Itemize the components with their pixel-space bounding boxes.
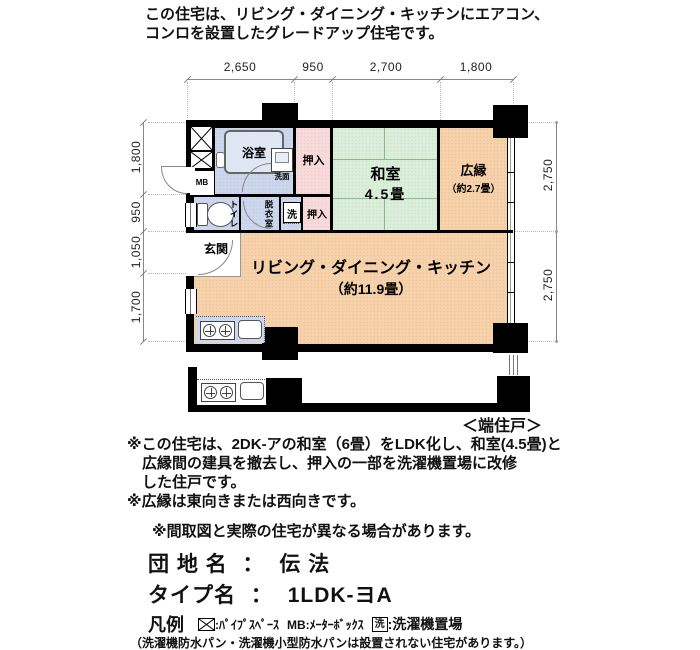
ldk-size-label: （約11.9畳） xyxy=(240,279,502,299)
extension-line xyxy=(513,82,514,103)
entry-door-arc xyxy=(161,167,187,194)
wall-left xyxy=(186,227,194,233)
legend-pipe-text: :ﾊﾟｲﾌﾟｽﾍﾟｰｽ xyxy=(215,616,279,633)
neighbor-stove-unit xyxy=(201,383,236,402)
dim-left-4: 1,700 xyxy=(129,283,143,331)
note-line5: ※間取図と実際の住宅が異なる場合があります。 xyxy=(152,520,480,541)
dim-tick xyxy=(140,338,147,345)
toilet-label: トイレ xyxy=(228,199,240,229)
laundry-label: 洗 xyxy=(284,206,300,221)
burner-icon xyxy=(203,324,216,337)
dim-top-3: 2,700 xyxy=(346,60,426,74)
legend-laundry-text: :洗濯機置場 xyxy=(388,614,463,634)
pipe-space-legend-icon xyxy=(198,618,215,631)
dim-top-1: 2,650 xyxy=(200,60,280,74)
dim-right-2: 2,750 xyxy=(541,261,555,309)
wall-left xyxy=(186,276,194,289)
window-tick xyxy=(507,262,514,263)
hiroen-size-label: （約2.7畳） xyxy=(438,180,509,195)
laundry-legend-icon: 洗 xyxy=(372,617,388,632)
burner-icon xyxy=(220,386,233,399)
wall-dressing-laundry xyxy=(279,197,281,230)
window-tick xyxy=(507,172,514,173)
extension-line xyxy=(440,82,441,122)
extension-line xyxy=(514,231,556,232)
wall-top xyxy=(186,120,513,128)
dim-left-1: 1,800 xyxy=(129,133,143,181)
washitsu-size-label: 4.5畳 xyxy=(333,184,438,204)
vent-mark xyxy=(513,355,514,375)
laundry-pan-mark xyxy=(283,223,299,224)
vent-mark xyxy=(509,355,510,375)
entry-door-leaf xyxy=(161,166,186,167)
vent-mark xyxy=(517,355,518,375)
estate-type-separator: ： xyxy=(251,584,273,607)
closet-lower-label: 押入 xyxy=(303,206,331,221)
neighbor-pillar-left xyxy=(266,378,302,404)
note-line3: した住戸です。 xyxy=(142,471,246,492)
header-note-line2: コンロを設置したグレードアップ住宅です。 xyxy=(145,24,549,43)
wall-bottom xyxy=(186,344,513,352)
estate-name-separator: ： xyxy=(243,553,265,576)
pillar-bottom-left xyxy=(262,327,298,360)
extension-line xyxy=(187,82,188,118)
ldk-name-label: リビング・ダイニング・キッチン xyxy=(240,254,502,278)
estate-type-value: 1LDK-ヨA xyxy=(288,584,393,607)
header-note: この住宅は、リビング・ダイニング・キッチンにエアコン、 コンロを設置したグレード… xyxy=(145,5,549,43)
estate-name-value: 伝 法 xyxy=(279,553,330,576)
burner-icon xyxy=(219,324,232,337)
estate-type-label: タイプ名 xyxy=(148,584,236,607)
estate-name-label: 団 地 名 xyxy=(148,553,228,576)
dim-top-4: 1,800 xyxy=(436,60,516,74)
extension-line xyxy=(148,273,186,274)
hiroen-name-label: 広縁 xyxy=(440,160,507,179)
dim-left-3: 1,050 xyxy=(129,228,143,276)
top-dimension-line xyxy=(187,79,513,80)
extension-line xyxy=(332,82,333,122)
neighbor-kitchen-sink xyxy=(240,382,264,400)
extension-line xyxy=(529,341,556,342)
note-line4: ※広縁は東向きまたは西向きです。 xyxy=(127,490,365,511)
window-tick xyxy=(507,202,514,203)
burner-icon xyxy=(204,386,217,399)
dim-right-1: 2,750 xyxy=(541,151,555,199)
shower-fixture xyxy=(216,152,225,168)
extension-line xyxy=(148,194,186,195)
legend-mb-text: MB:ﾒｰﾀｰﾎﾞｯｸｽ xyxy=(287,616,364,633)
window-tick xyxy=(507,292,514,293)
tatami-line xyxy=(333,159,438,160)
ldk-window xyxy=(185,289,197,314)
header-note-line1: この住宅は、リビング・ダイニング・キッチンにエアコン、 xyxy=(145,5,549,24)
tatami-line xyxy=(384,128,385,159)
closet-upper-label: 押入 xyxy=(296,152,331,168)
wall-left xyxy=(186,314,194,352)
pillar-top-right xyxy=(493,105,528,138)
pillar-top-left xyxy=(262,103,298,128)
floorplan-page: この住宅は、リビング・ダイニング・キッチンにエアコン、 コンロを設置したグレード… xyxy=(0,0,700,650)
washbasin-unit xyxy=(271,148,293,172)
note-line2: 広縁間の建具を撤去し、押入の一部を洗濯機置場に改修 xyxy=(142,452,517,473)
kitchen-sink xyxy=(238,320,262,339)
legend-disclaimer: （洗濯機防水パン・洗濯機小型防水パンは設置されない住宅があります。） xyxy=(130,634,532,650)
estate-type-row: タイプ名 ： 1LDK-ヨA xyxy=(148,579,393,609)
extension-line xyxy=(529,122,556,123)
estate-name-row: 団 地 名 ： 伝 法 xyxy=(148,548,330,578)
extension-line xyxy=(148,122,186,123)
laundry-pan: 洗 xyxy=(283,202,301,223)
extension-line xyxy=(148,231,186,232)
dim-top-2: 950 xyxy=(283,60,343,74)
neighbor-pillar-right xyxy=(497,376,530,404)
stove-unit xyxy=(200,321,235,340)
pipe-space-icon xyxy=(190,126,213,151)
extension-line xyxy=(148,341,186,342)
pillar-bottom-right xyxy=(493,323,528,353)
wall-ldk-top xyxy=(194,230,513,233)
note-line1: ※この住宅は、2DK-アの和室（6畳）をLDK化し、和室(4.5畳)と xyxy=(127,433,562,454)
toilet-window xyxy=(185,203,197,227)
dressing-label: 脱衣室 xyxy=(263,198,275,230)
washitsu-name-label: 和室 xyxy=(333,163,438,184)
